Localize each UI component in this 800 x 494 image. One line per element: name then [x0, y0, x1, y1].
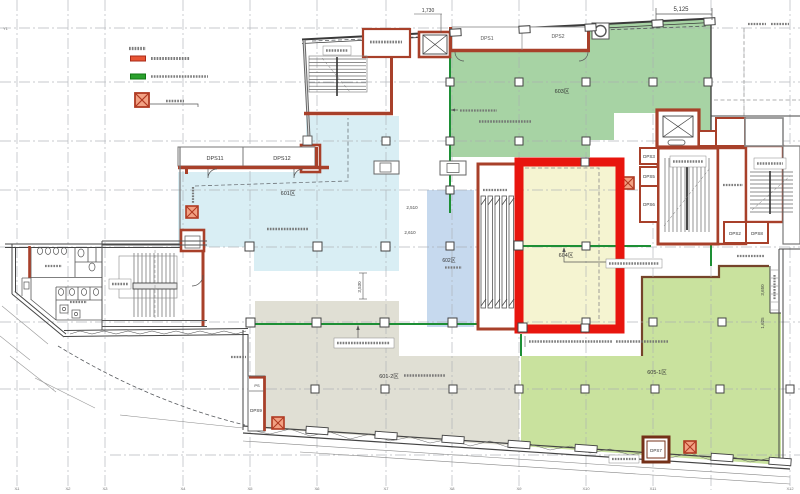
svg-text:X3: X3 [103, 486, 109, 491]
svg-text:X10: X10 [582, 486, 590, 491]
svg-text:X12: X12 [786, 486, 794, 491]
svg-text:Y1: Y1 [3, 26, 9, 31]
svg-text:2,610: 2,610 [404, 230, 416, 235]
svg-text:1,625: 1,625 [760, 317, 765, 329]
svg-text:3,650: 3,650 [760, 284, 765, 296]
svg-text:DPS3: DPS3 [643, 154, 655, 159]
svg-text:DPS11: DPS11 [206, 156, 223, 162]
svg-text:602区: 602区 [442, 258, 455, 264]
svg-text:DPS8: DPS8 [751, 231, 763, 236]
svg-text:X1: X1 [15, 486, 21, 491]
svg-text:DPS12: DPS12 [273, 156, 290, 162]
svg-text:DPS7: DPS7 [650, 448, 662, 453]
svg-text:X2: X2 [66, 486, 72, 491]
svg-text:X11: X11 [650, 486, 658, 491]
svg-text:DPS2: DPS2 [551, 34, 564, 40]
svg-text:DPS5: DPS5 [643, 174, 655, 179]
svg-text:X7: X7 [384, 486, 390, 491]
svg-text:604区: 604区 [559, 252, 574, 259]
svg-text:605-1区: 605-1区 [647, 369, 667, 376]
svg-text:X9: X9 [517, 486, 523, 491]
svg-text:3,530: 3,530 [357, 281, 362, 293]
svg-text:DPS6: DPS6 [643, 202, 655, 207]
svg-text:1,730: 1,730 [422, 8, 435, 14]
svg-text:603区: 603区 [555, 88, 570, 95]
svg-text:DPS1: DPS1 [480, 36, 493, 42]
svg-text:X4: X4 [181, 486, 187, 491]
svg-text:DPS9: DPS9 [250, 408, 262, 413]
svg-text:X6: X6 [315, 486, 321, 491]
svg-text:X8: X8 [450, 486, 456, 491]
svg-text:DPS2: DPS2 [729, 231, 741, 236]
svg-text:601-2区: 601-2区 [379, 373, 399, 380]
svg-text:601区: 601区 [281, 190, 296, 197]
svg-text:2,510: 2,510 [406, 205, 418, 210]
svg-text:5,125: 5,125 [673, 7, 689, 13]
svg-text:X5: X5 [248, 486, 254, 491]
svg-text:PS: PS [254, 383, 260, 388]
